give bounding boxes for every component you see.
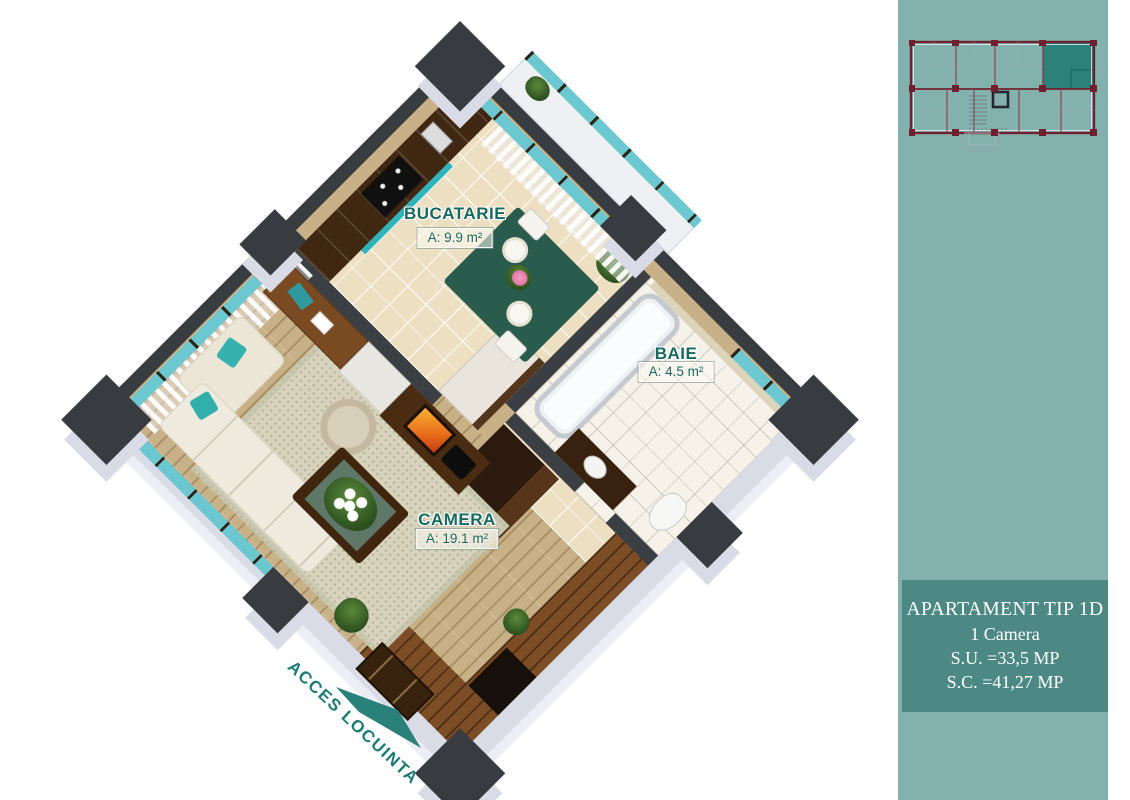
miniplan-elevator (993, 92, 1008, 107)
miniplan-stairs (969, 96, 1009, 129)
bathroom-label: BAIE (655, 344, 698, 364)
apartment-built-area: S.C. =41,27 MP (902, 672, 1108, 693)
apartment-3d-plan (106, 46, 813, 753)
livingroom-label: CAMERA (418, 510, 496, 530)
pillar-left-corner (61, 375, 152, 466)
apartment-rooms-count: 1 Camera (902, 624, 1108, 645)
apartment-info-panel: APARTAMENT TIP 1D 1 Camera S.U. =33,5 MP… (902, 580, 1108, 712)
sidebar: APARTAMENT TIP 1D 1 Camera S.U. =33,5 MP… (898, 0, 1108, 800)
floor-plan-poster: BUCATARIE A: 9.9 m² BAIE A: 4.5 m² CAMER… (0, 0, 1130, 800)
apartment-type-title: APARTAMENT TIP 1D (902, 599, 1108, 621)
pillar-top-corner (415, 21, 506, 112)
pillar-right-corner (768, 375, 859, 466)
pillar-bottom-corner (415, 728, 506, 800)
livingroom-area-box: A: 19.1 m² (416, 529, 498, 549)
kitchen-label: BUCATARIE (404, 204, 506, 224)
apartment-useful-area: S.U. =33,5 MP (902, 648, 1108, 669)
bathroom-area-box: A: 4.5 m² (639, 362, 714, 382)
building-floor-miniplan (909, 40, 1097, 154)
miniplan-highlighted-unit (1043, 42, 1094, 89)
kitchen-area-box: A: 9.9 m² (418, 228, 493, 248)
